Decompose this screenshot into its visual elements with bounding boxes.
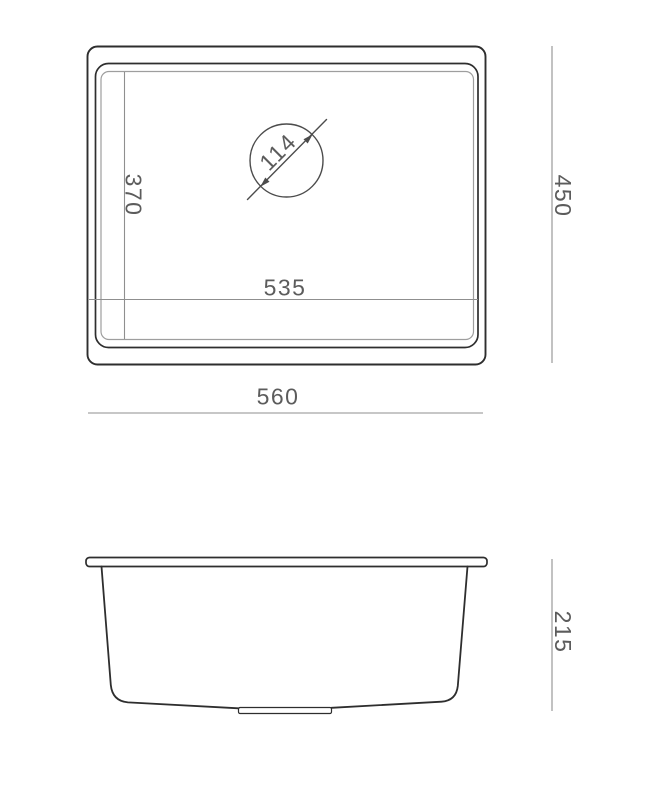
label-outer-width: 560 <box>257 384 300 410</box>
top-view-bowl-rim <box>96 64 479 348</box>
label-height: 215 <box>550 611 576 654</box>
side-view-rim-profile <box>86 558 487 567</box>
side-view: 215 <box>86 558 576 714</box>
label-inner-width: 535 <box>264 275 307 301</box>
label-outer-depth: 450 <box>550 175 576 218</box>
side-view-drain-fitting <box>239 708 332 714</box>
side-view-bowl-profile <box>102 567 468 709</box>
label-drain-diameter: 114 <box>254 128 301 175</box>
sink-dimension-drawing: 114 370 535 450 560 215 <box>0 0 646 800</box>
drawing-svg: 114 370 535 450 560 215 <box>0 0 646 800</box>
label-inner-depth: 370 <box>121 174 147 217</box>
top-view: 114 370 535 450 560 <box>88 46 577 413</box>
